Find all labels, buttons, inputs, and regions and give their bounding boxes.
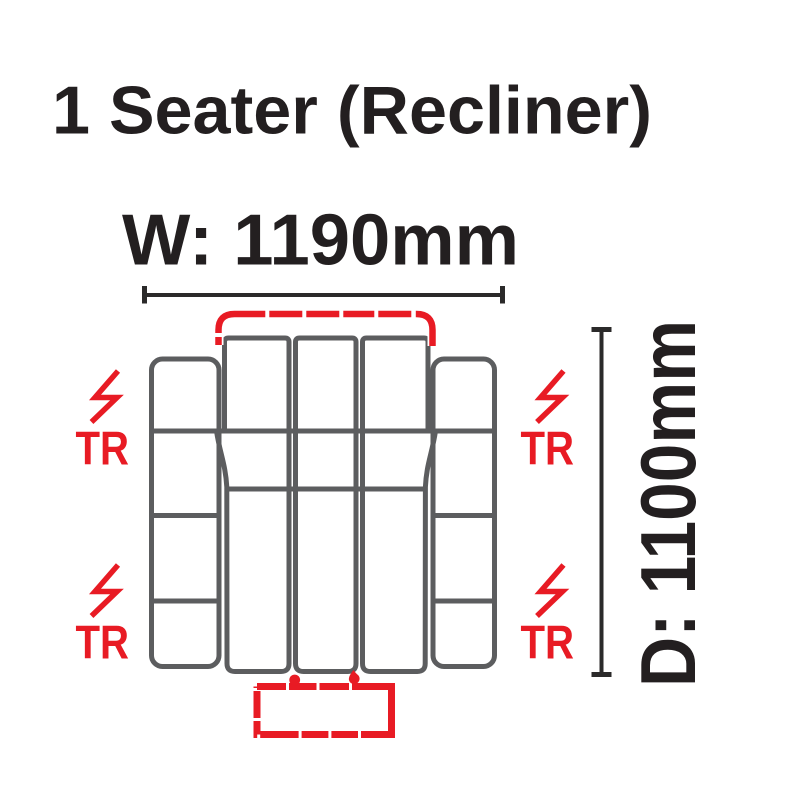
svg-text:TR: TR (521, 616, 575, 669)
svg-text:1 Seater (Recliner): 1 Seater (Recliner) (52, 73, 652, 149)
svg-text:W: 1190mm: W: 1190mm (122, 201, 519, 281)
svg-text:TR: TR (76, 422, 130, 475)
svg-text:D: 1100mm: D: 1100mm (624, 320, 712, 687)
svg-text:TR: TR (76, 616, 130, 669)
svg-text:TR: TR (521, 422, 575, 475)
